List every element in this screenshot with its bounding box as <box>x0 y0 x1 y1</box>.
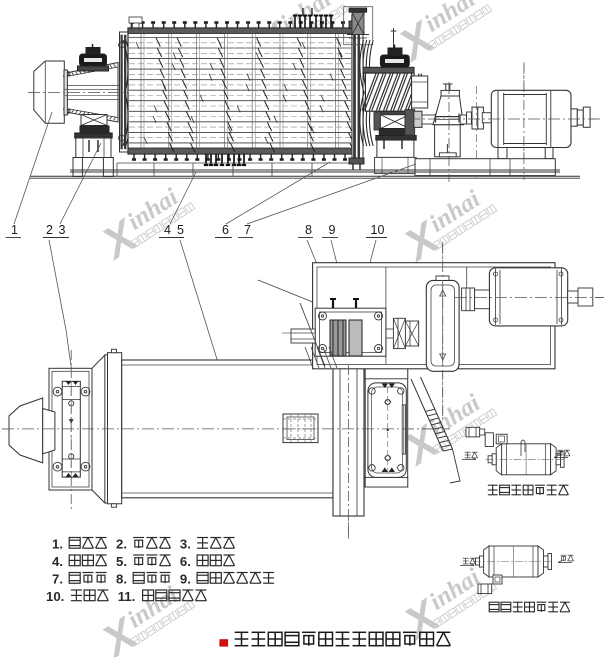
svg-text:9.: 9. <box>180 572 191 587</box>
svg-text:7: 7 <box>244 223 251 237</box>
svg-text:6: 6 <box>222 223 229 237</box>
svg-text:4.: 4. <box>52 554 63 569</box>
svg-text:8.: 8. <box>116 572 127 587</box>
svg-text:3.: 3. <box>180 537 191 552</box>
svg-text:5.: 5. <box>116 554 127 569</box>
svg-text:6.: 6. <box>180 554 191 569</box>
svg-text:5: 5 <box>177 223 184 237</box>
svg-text:8: 8 <box>305 223 312 237</box>
svg-text:10: 10 <box>371 223 385 237</box>
svg-text:4: 4 <box>164 223 171 237</box>
svg-text:9: 9 <box>329 223 336 237</box>
svg-text:1: 1 <box>11 223 18 237</box>
svg-text:1.: 1. <box>52 537 63 552</box>
svg-text:7.: 7. <box>52 572 63 587</box>
svg-text:2: 2 <box>46 223 53 237</box>
svg-text:10.: 10. <box>46 589 64 604</box>
svg-text:3: 3 <box>59 223 66 237</box>
svg-text:11.: 11. <box>118 589 136 604</box>
svg-text:2.: 2. <box>116 537 127 552</box>
